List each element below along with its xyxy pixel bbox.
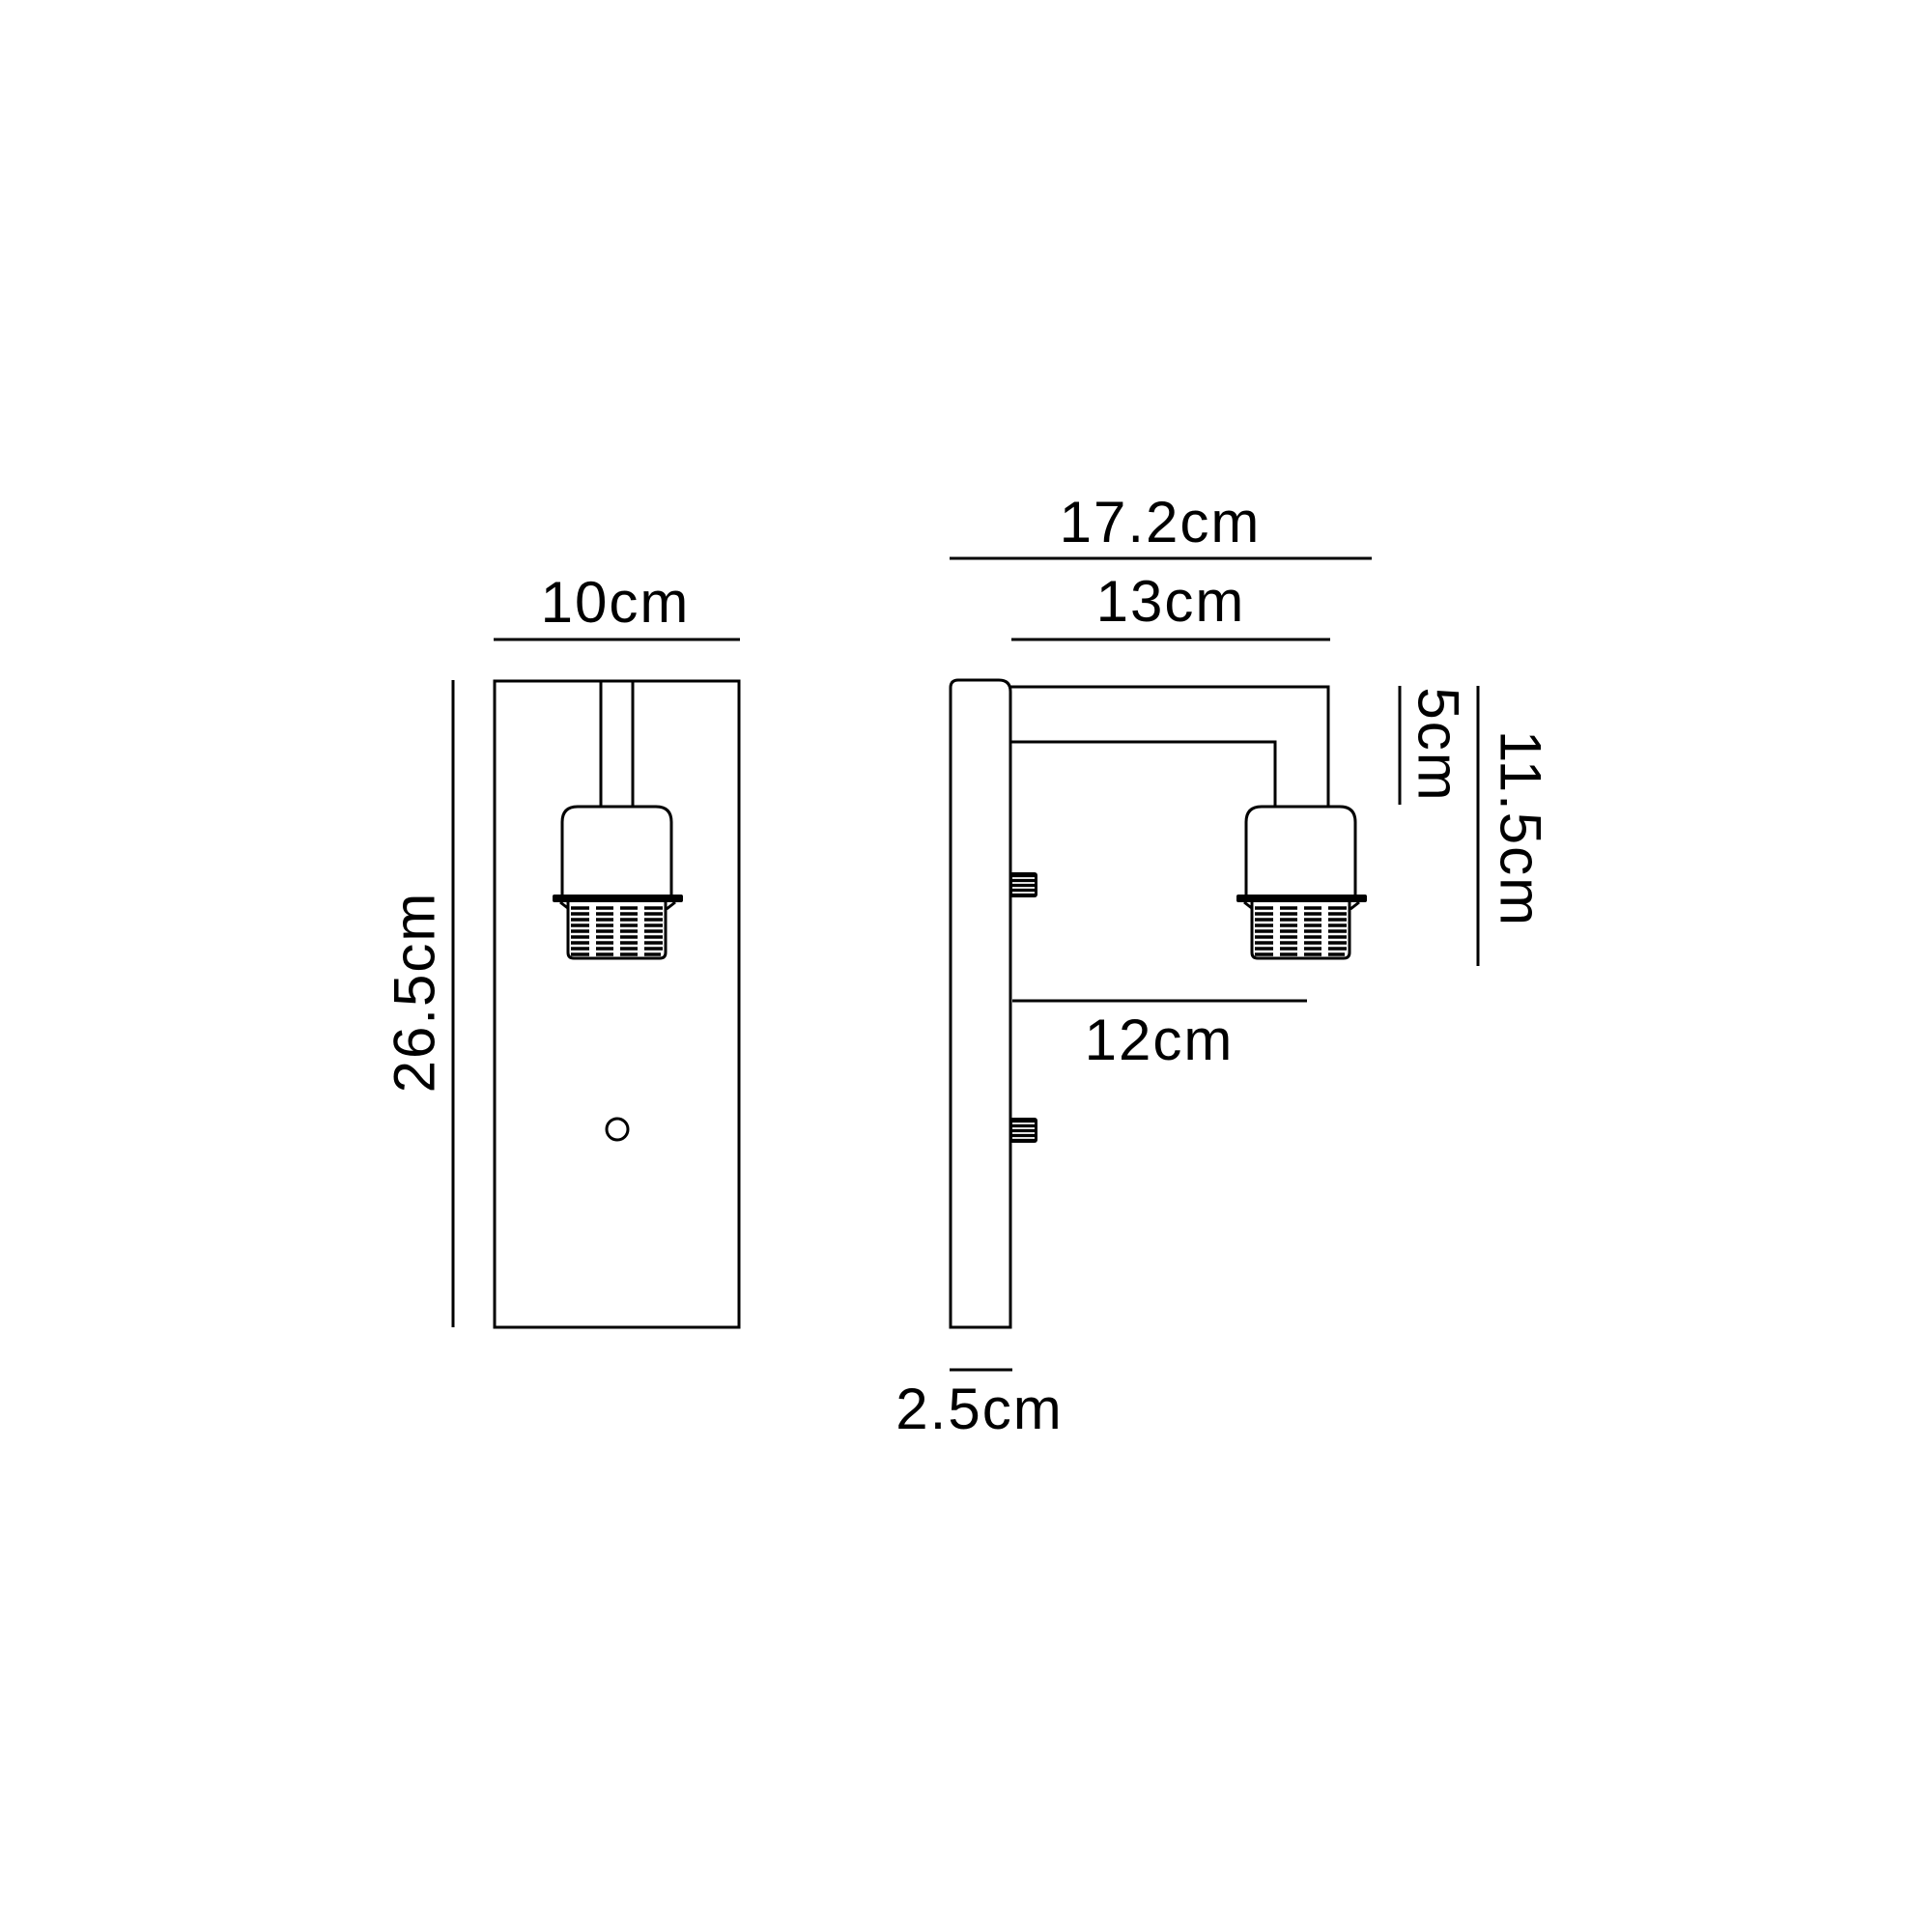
stem-front xyxy=(601,681,633,808)
lamp-socket-side xyxy=(1236,807,1367,958)
backplate-side xyxy=(951,680,1010,1327)
front-view: 10cm 26.5cm xyxy=(383,570,741,1327)
lamp-socket-front xyxy=(553,807,683,958)
backplate-depth-label: 2.5cm xyxy=(895,1377,1063,1441)
holder-drop-label: 11.5cm xyxy=(1489,730,1553,927)
switch-hole-front xyxy=(607,1119,628,1140)
arm-depth-label: 13cm xyxy=(1096,569,1246,634)
screw-knob-top xyxy=(1009,872,1037,897)
total-depth-label: 17.2cm xyxy=(1060,490,1262,554)
front-height-label: 26.5cm xyxy=(383,892,447,1094)
screw-knob-bottom xyxy=(1009,1118,1037,1143)
side-view: 17.2cm 13cm 12cm 5cm 11.5cm 2.5cm xyxy=(895,490,1552,1441)
wall-light-dimension-diagram: 10cm 26.5cm 17.2cm 13cm 12cm 5cm 11.5cm … xyxy=(0,0,1932,1932)
arm-drop-label: 5cm xyxy=(1406,687,1471,802)
dimension-diagram-page: 10cm 26.5cm 17.2cm 13cm 12cm 5cm 11.5cm … xyxy=(0,0,1932,1932)
arm-side xyxy=(1010,687,1328,808)
front-width-label: 10cm xyxy=(541,570,691,635)
clearance-label: 12cm xyxy=(1085,1008,1235,1072)
